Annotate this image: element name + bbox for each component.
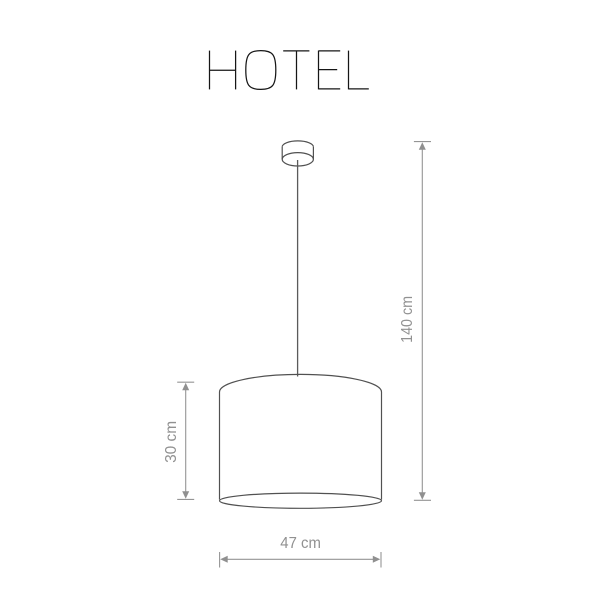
svg-text:30 cm: 30 cm (163, 421, 180, 463)
svg-text:47 cm: 47 cm (280, 535, 321, 552)
svg-text:140 cm: 140 cm (399, 296, 416, 343)
